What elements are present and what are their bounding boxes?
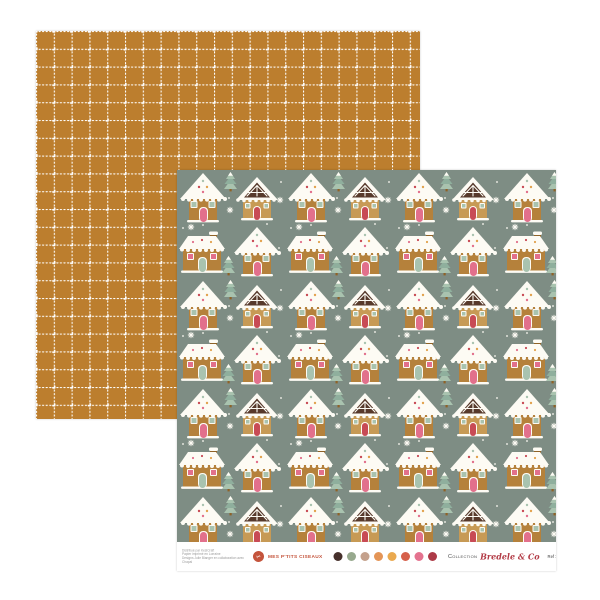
front-paper-sheet: Distribué par KesiCraft Papier imprimé e… <box>177 170 556 571</box>
product-image: Distribué par KesiCraft Papier imprimé e… <box>0 0 600 600</box>
gingerbread-pattern <box>177 170 556 542</box>
color-swatch <box>361 552 370 561</box>
scissors-glyph: ✂ <box>255 553 262 561</box>
scissors-logo-icon: ✂ <box>251 549 265 563</box>
distributor-line: Designs Julie Blanger en collaboration a… <box>182 557 246 565</box>
branding-strip: Distribué par KesiCraft Papier imprimé e… <box>177 542 556 571</box>
collection-name: Bredele & Co <box>480 552 539 562</box>
color-swatch <box>334 552 343 561</box>
color-swatch <box>415 552 424 561</box>
brand-name: MES P'TITS CISEAUX <box>268 554 323 560</box>
collection-label: Collection <box>448 554 477 560</box>
color-swatch <box>401 552 410 561</box>
distributor-text: Distribué par KesiCraft Papier imprimé e… <box>182 549 246 564</box>
color-swatch <box>388 552 397 561</box>
color-swatches <box>334 552 438 561</box>
color-swatch <box>428 552 437 561</box>
color-swatch <box>347 552 356 561</box>
color-swatch <box>374 552 383 561</box>
ref-code: Ref : PO-BCO403 <box>548 554 556 559</box>
